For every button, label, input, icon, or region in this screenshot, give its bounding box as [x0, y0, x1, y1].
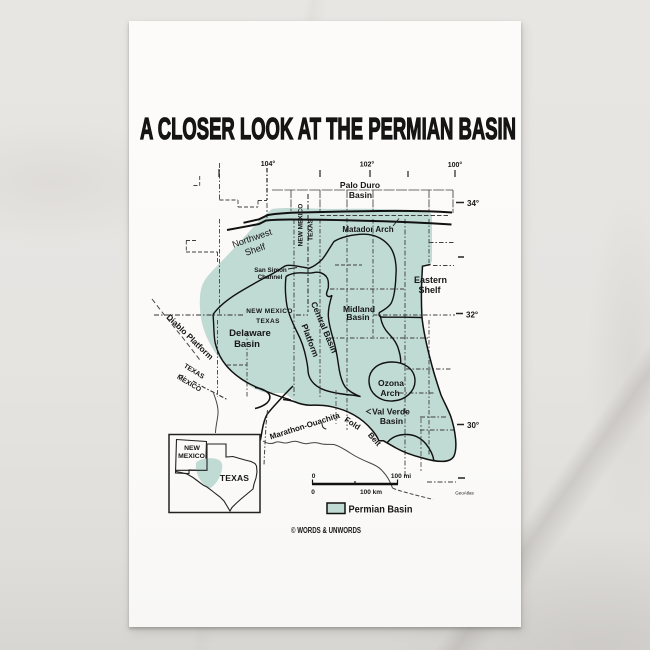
svg-text:32°: 32°: [466, 311, 478, 320]
svg-text:NEW: NEW: [184, 445, 200, 452]
svg-text:NEW MEXICO: NEW MEXICO: [298, 204, 305, 247]
svg-text:Delaware: Delaware: [229, 328, 271, 339]
svg-text:Val Verde: Val Verde: [372, 407, 410, 417]
svg-text:100 mi: 100 mi: [391, 473, 411, 480]
svg-text:Palo Duro: Palo Duro: [340, 180, 380, 190]
svg-text:30°: 30°: [467, 421, 479, 430]
svg-text:NEW MEXICO: NEW MEXICO: [246, 308, 293, 315]
svg-text:TEXAS: TEXAS: [220, 473, 249, 483]
svg-text:MEXICO: MEXICO: [178, 453, 205, 460]
svg-text:Marathon-Ouachita: Marathon-Ouachita: [269, 411, 342, 442]
svg-text:Basin: Basin: [346, 312, 369, 322]
svg-text:San Simon: San Simon: [254, 267, 287, 274]
svg-text:TEXAS: TEXAS: [308, 219, 315, 241]
svg-text:Ozona: Ozona: [378, 378, 404, 388]
svg-text:34°: 34°: [467, 199, 479, 208]
svg-text:Eastern: Eastern: [414, 275, 447, 285]
svg-text:Channel: Channel: [258, 274, 283, 281]
svg-text:102°: 102°: [360, 161, 375, 169]
svg-text:0: 0: [311, 489, 315, 496]
svg-text:TEXAS: TEXAS: [256, 318, 280, 325]
svg-text:Basin: Basin: [234, 339, 260, 350]
svg-text:© WORDS & UNWORDS: © WORDS & UNWORDS: [291, 526, 361, 535]
svg-text:104°: 104°: [261, 160, 276, 168]
svg-text:Matador Arch: Matador Arch: [342, 225, 393, 234]
svg-text:Basin: Basin: [349, 190, 372, 200]
svg-text:100°: 100°: [448, 161, 463, 169]
svg-text:A CLOSER LOOK AT THE PERMIAN B: A CLOSER LOOK AT THE PERMIAN BASIN: [140, 111, 516, 146]
svg-text:100 km: 100 km: [360, 489, 382, 496]
svg-text:Arch: Arch: [380, 388, 399, 398]
svg-text:0: 0: [312, 473, 316, 480]
svg-text:GeoAtlas: GeoAtlas: [455, 491, 474, 496]
svg-text:Basin: Basin: [380, 416, 403, 426]
svg-text:Permian Basin: Permian Basin: [349, 504, 413, 516]
svg-text:Shelf: Shelf: [418, 285, 441, 295]
